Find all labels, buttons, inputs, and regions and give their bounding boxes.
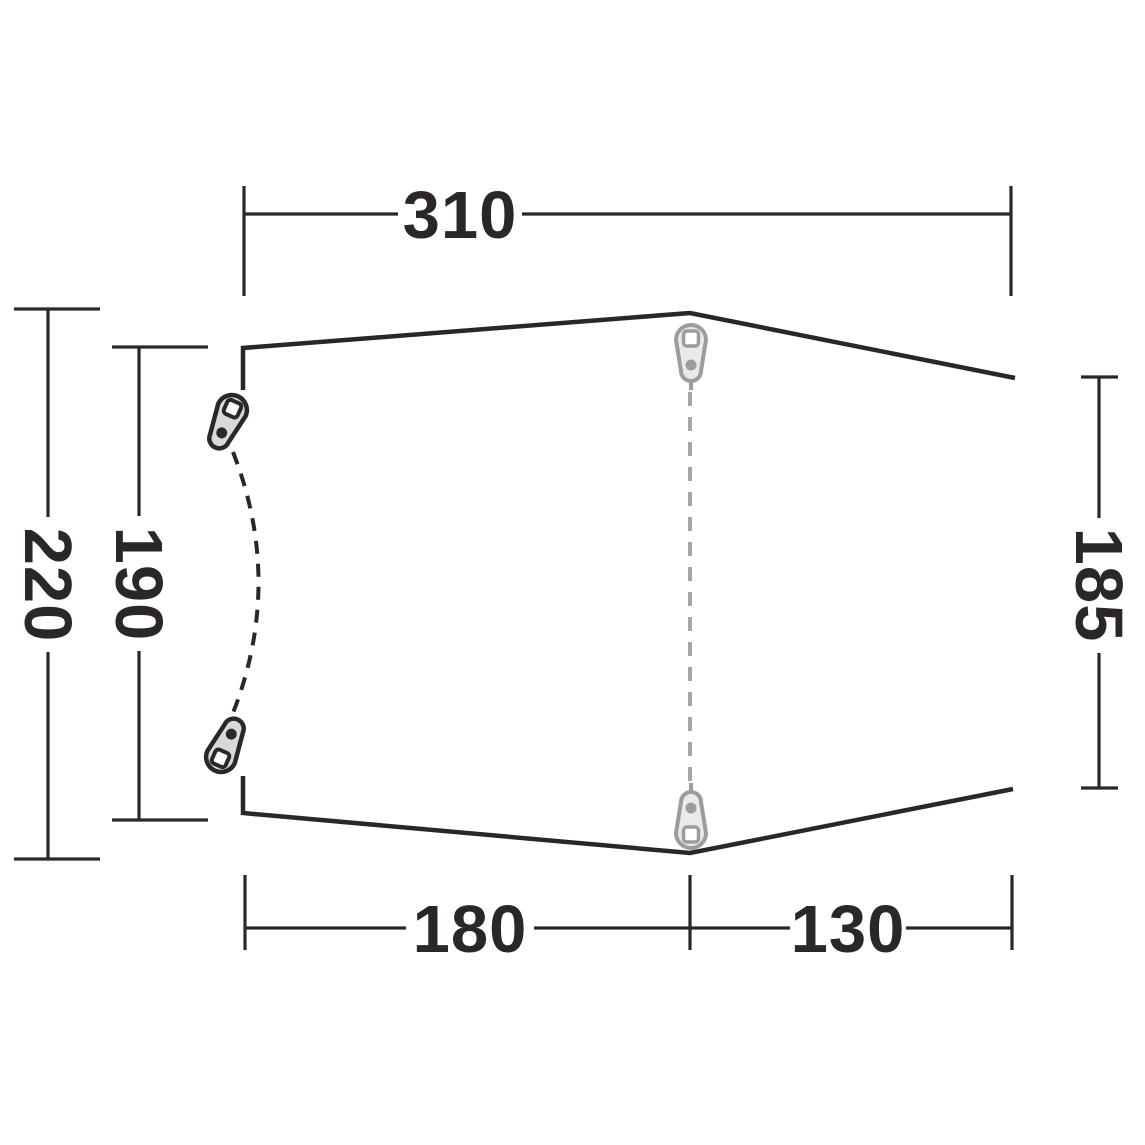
tent-peg-icon	[201, 713, 251, 776]
tent-dimension-diagram: 310 220 190 185 180 130	[0, 0, 1145, 1145]
peg-hole	[684, 331, 699, 346]
dimension-left-outer: 220	[10, 309, 100, 859]
peg-hole	[684, 827, 699, 842]
diagram-canvas: 310 220 190 185 180 130	[0, 0, 1145, 1145]
dimension-bottom: 180 130	[245, 875, 1012, 967]
tent-bottom-edge	[243, 776, 1013, 853]
dimension-label-180: 180	[413, 892, 528, 967]
tent-top-edge	[243, 313, 1015, 390]
door-dashed-curve	[231, 452, 259, 718]
peg-pin	[686, 803, 697, 814]
dimension-left-inner: 190	[101, 347, 208, 820]
dimension-tick	[244, 186, 1011, 296]
peg-pin	[686, 360, 697, 371]
tent-peg-icon	[202, 390, 252, 453]
dimension-label-220: 220	[10, 528, 85, 643]
tent-peg-icon	[676, 783, 706, 848]
tent-peg-icon	[676, 325, 706, 390]
dimension-label-190: 190	[101, 527, 176, 642]
peg-hole	[211, 748, 231, 768]
dimension-label-185: 185	[1061, 528, 1136, 643]
dimension-top-width: 310	[244, 178, 1011, 296]
dimension-label-130: 130	[791, 892, 906, 967]
dimension-right-side: 185	[1061, 377, 1136, 788]
dimension-label-310: 310	[403, 178, 518, 253]
peg-hole	[223, 399, 243, 419]
